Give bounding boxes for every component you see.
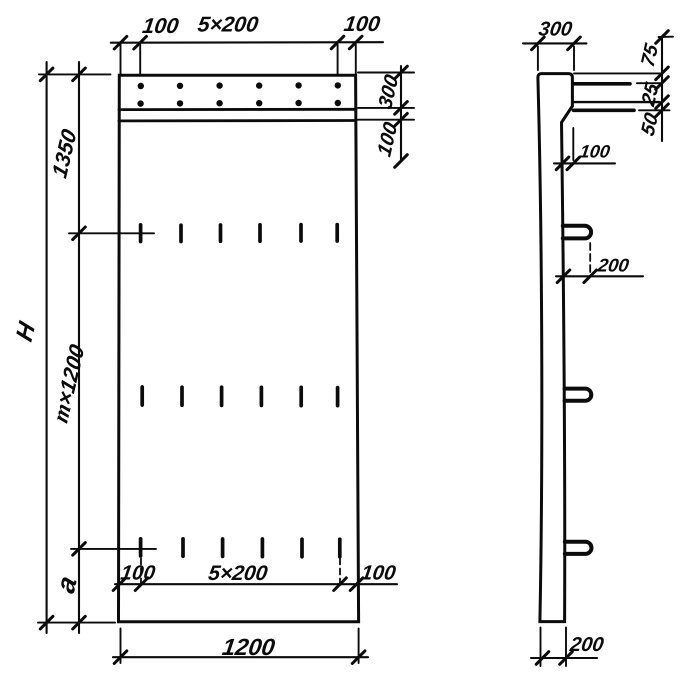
svg-text:5×200: 5×200: [207, 562, 269, 585]
svg-text:200: 200: [596, 255, 631, 276]
svg-text:100: 100: [119, 562, 157, 585]
svg-text:100: 100: [360, 562, 398, 585]
svg-text:100: 100: [141, 13, 180, 38]
svg-text:300: 300: [537, 19, 573, 41]
svg-text:200: 200: [568, 634, 605, 656]
svg-text:5×200: 5×200: [196, 12, 260, 37]
svg-text:100: 100: [342, 11, 381, 36]
svg-text:100: 100: [578, 142, 611, 162]
svg-text:1200: 1200: [221, 635, 277, 661]
